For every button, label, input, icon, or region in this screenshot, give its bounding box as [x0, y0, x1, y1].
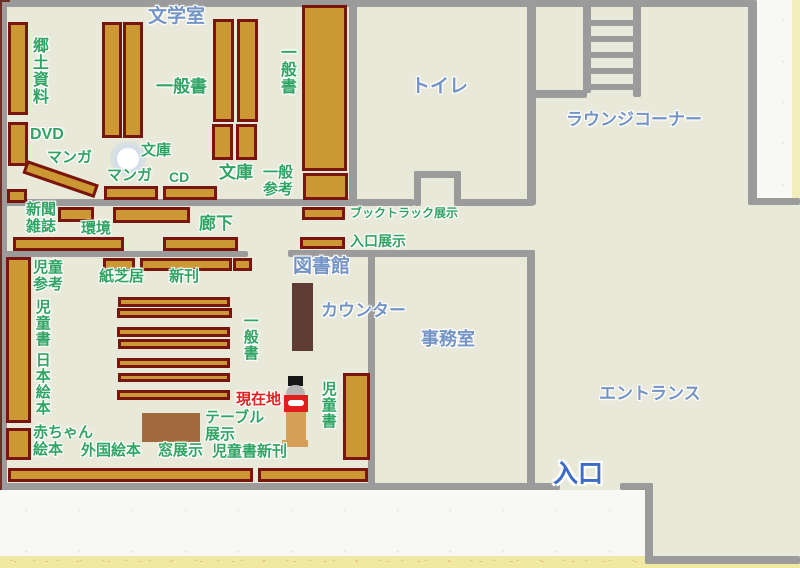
label-children-books-a: 児童書 [33, 299, 50, 347]
wall-top [0, 0, 757, 7]
label-local-materials: 郷土資料 [29, 37, 47, 105]
label-library: 図書館 [293, 256, 350, 277]
wall-office-right [527, 250, 535, 490]
shelf-entrance-display [300, 237, 345, 249]
shelf-bunko-small-1 [212, 124, 233, 160]
floor-entrance-bottom [650, 488, 800, 558]
label-table-display: テーブル 展示 [205, 410, 264, 444]
wall-mid-a [6, 251, 248, 257]
label-bunko-b: 文庫 [219, 163, 253, 182]
shelf-general-reference [303, 173, 348, 200]
shelf-stack-row-7 [117, 390, 230, 400]
label-literature-room: 文学室 [148, 6, 205, 27]
wall-toilet-left [349, 0, 357, 205]
label-counter: カウンター [321, 301, 406, 320]
label-booktruck-display: ブックトラック展示 [350, 207, 458, 220]
wall-corridor-top-b [454, 199, 534, 206]
paper-edge-right [792, 0, 800, 205]
wall-corridor-top-a [0, 199, 414, 206]
shelf-corridor-top [113, 207, 190, 223]
wall-bottom-library [0, 483, 560, 490]
label-manga-a: マンガ [47, 150, 92, 167]
shelf-local-materials [8, 22, 28, 115]
wall-right-horizontal [748, 198, 800, 205]
shelf-manga-row [104, 186, 158, 200]
label-bunko-a: 文庫 [141, 143, 171, 160]
label-general-books-a: 一般書 [156, 77, 207, 96]
label-newspapers-magazines: 新聞 雑誌 [26, 202, 56, 236]
wall-lounge-stub [527, 90, 587, 98]
shelf-stack-row-6 [118, 373, 230, 382]
shelf-corridor-long [163, 237, 238, 251]
shelf-booktruck-display [302, 207, 345, 220]
label-lounge-corner: ラウンジコーナー [566, 110, 702, 129]
shelf-stack-row-4 [118, 339, 230, 349]
library-floor-map: 文学室 トイレ ラウンジコーナー 図書館 カウンター 事務室 エントランス 入口… [0, 0, 800, 568]
label-kamishibai: 紙芝居 [99, 269, 144, 286]
shelf-baby-books [6, 428, 31, 460]
label-japanese-picture-books: 日本絵本 [33, 352, 50, 416]
label-children-books-b: 児童書 [319, 381, 336, 429]
label-manga-b: マンガ [107, 168, 152, 185]
wall-entrance-vertical [645, 483, 653, 560]
shelf-stack-row-2 [117, 308, 232, 318]
label-general-books-b: 一般書 [277, 44, 295, 95]
shelf-bunko-twin-2 [237, 19, 258, 122]
label-new-books: 新刊 [169, 269, 199, 286]
label-children-new-books: 児童書新刊 [212, 444, 287, 461]
label-entrance: 入口 [553, 460, 603, 488]
shelf-new-books-end [233, 258, 252, 271]
shelf-window-long [8, 468, 253, 482]
wall-entrance-bottom [645, 556, 800, 564]
map-frame-top-corner [0, 0, 10, 2]
shelf-bunko-twin-1 [213, 19, 234, 122]
shelf-general-twin-2 [123, 22, 143, 138]
label-toilet: トイレ [411, 76, 468, 97]
wall-lounge-divider [527, 0, 536, 205]
shelf-left-small [7, 189, 27, 203]
label-environment: 環境 [81, 221, 111, 238]
label-general-reference: 一般 参考 [263, 165, 293, 199]
shelf-general-twin-1 [102, 22, 122, 138]
counter-desk [292, 283, 313, 351]
label-corridor: 廊下 [199, 214, 233, 233]
shelf-general-tall-column [302, 5, 347, 171]
label-window-display: 窓展示 [158, 443, 203, 460]
shelf-children-books-right [343, 373, 370, 460]
display-table [142, 413, 200, 442]
shelf-dvd [8, 122, 28, 166]
wall-right-top [748, 0, 757, 205]
label-entrance-hall: エントランス [599, 384, 701, 403]
shelf-stack-row-1 [118, 297, 230, 307]
label-entrance-display: 入口展示 [350, 234, 406, 250]
label-current-location: 現在地 [236, 392, 281, 409]
label-office: 事務室 [421, 329, 475, 349]
shelf-window-right [258, 468, 368, 482]
shelf-stack-row-5 [117, 358, 230, 368]
map-frame-left [0, 0, 2, 490]
shelf-bunko-small-2 [236, 124, 257, 160]
shelf-cd-row [163, 186, 217, 200]
shelf-children-column [6, 257, 31, 423]
label-general-books-c: 一般書 [241, 313, 258, 361]
label-cd: CD [169, 170, 189, 186]
label-foreign-picture-books: 外国絵本 [81, 443, 141, 460]
shelf-stack-row-3 [117, 327, 230, 337]
label-children-reference: 児童 参考 [33, 260, 63, 294]
label-dvd: DVD [30, 126, 64, 144]
shelf-environment-long [13, 237, 124, 251]
